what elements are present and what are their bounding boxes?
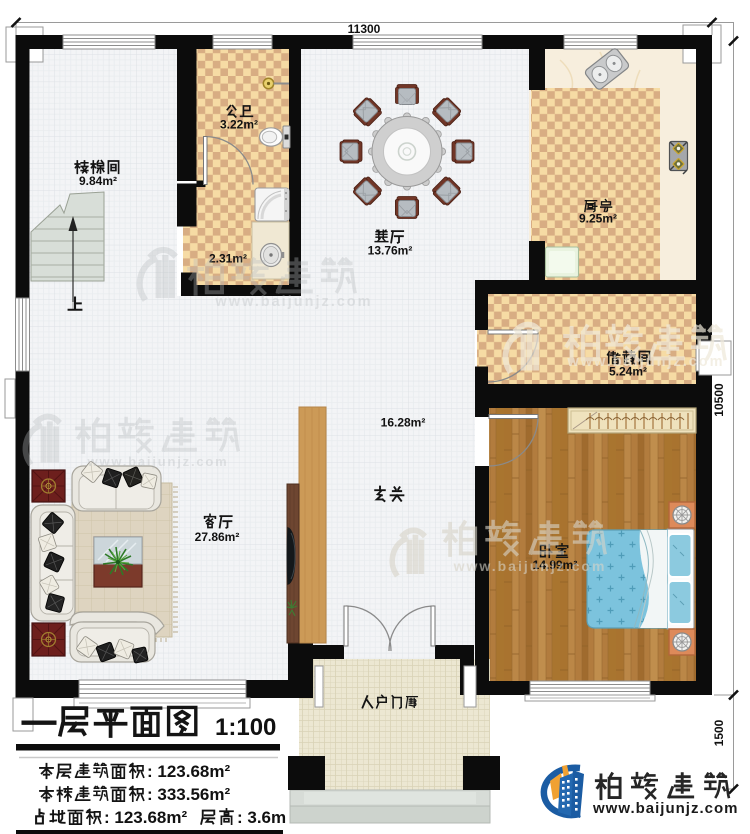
svg-text:www.baijunjz.com: www.baijunjz.com: [566, 354, 724, 370]
svg-text:1:100: 1:100: [215, 714, 276, 741]
svg-text:: 123.68m²: : 123.68m²: [147, 762, 230, 781]
svg-text:10500: 10500: [712, 383, 726, 417]
svg-text:www.baijunjz.com: www.baijunjz.com: [592, 800, 738, 817]
svg-text:9.84m²: 9.84m²: [79, 174, 117, 188]
svg-text:11300: 11300: [348, 22, 381, 36]
svg-text:www.baijunjz.com: www.baijunjz.com: [87, 454, 229, 469]
svg-text:3.22m²: 3.22m²: [220, 118, 258, 132]
svg-text:9.25m²: 9.25m²: [579, 212, 617, 226]
svg-text:www.baijunjz.com: www.baijunjz.com: [453, 558, 607, 574]
svg-text:: 333.56m²: : 333.56m²: [147, 785, 230, 804]
svg-text:: 123.68m²: : 123.68m²: [104, 808, 187, 827]
svg-text:1500: 1500: [712, 719, 726, 746]
svg-text:16.28m²: 16.28m²: [381, 416, 426, 430]
svg-text:27.86m²: 27.86m²: [195, 530, 240, 544]
svg-text:13.76m²: 13.76m²: [368, 244, 413, 258]
svg-text:: 3.6m: : 3.6m: [237, 808, 286, 827]
svg-text:www.baijunjz.com: www.baijunjz.com: [214, 294, 372, 310]
